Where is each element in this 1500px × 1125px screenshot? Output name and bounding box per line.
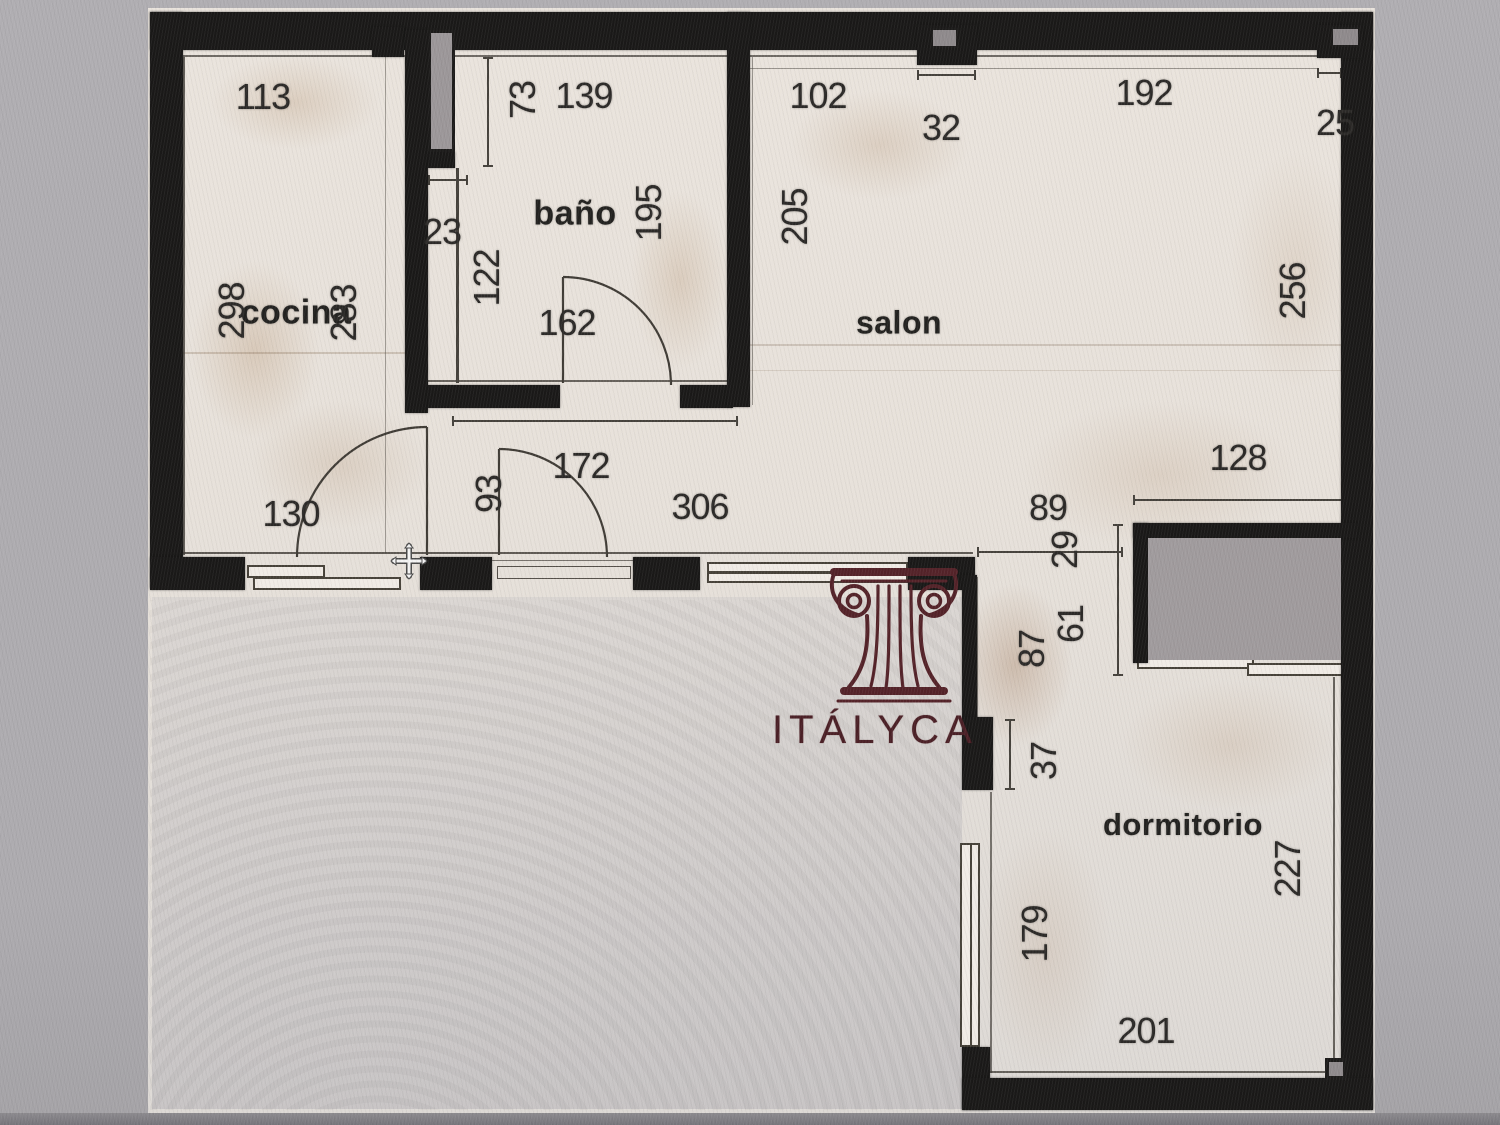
- dimension-label: 195: [628, 184, 670, 241]
- dimension-label: 283: [323, 284, 365, 341]
- dimension-label: 89: [1029, 487, 1067, 529]
- logo-brand-text: ITÁLYCA: [772, 708, 972, 753]
- dimension-label: 128: [1209, 437, 1266, 479]
- dimension-label: 306: [671, 486, 728, 528]
- dimension-label: 192: [1115, 72, 1172, 114]
- dimension-label: 29: [1044, 531, 1086, 569]
- door-swings: [0, 0, 1500, 1125]
- dimension-label: 25: [1316, 102, 1354, 144]
- dimension-label: 73: [502, 81, 544, 119]
- dimension-label: 139: [555, 75, 612, 117]
- dimension-label: 32: [922, 107, 960, 149]
- dimension-label: 37: [1023, 742, 1065, 780]
- dimension-label: 205: [774, 188, 816, 245]
- room-label-bano: baño: [533, 195, 616, 234]
- dimension-label: 298: [211, 282, 253, 339]
- dimension-label: 61: [1050, 605, 1092, 643]
- move-cursor-icon: [388, 540, 430, 582]
- room-label-salon: salon: [856, 305, 942, 342]
- dimension-label: 87: [1011, 630, 1053, 668]
- dimension-label: 113: [236, 76, 290, 118]
- dimension-label: 93: [468, 475, 510, 513]
- dimension-label: 179: [1014, 905, 1056, 962]
- dimension-label: 130: [262, 493, 319, 535]
- floor-plan-photo: cocina baño salon dormitorio 11373139102…: [0, 0, 1500, 1125]
- dimension-label: 162: [538, 302, 595, 344]
- dimension-label: 227: [1267, 840, 1309, 897]
- dimension-label: 23: [423, 211, 461, 253]
- dimension-label: 122: [466, 249, 508, 306]
- dimension-label: 201: [1117, 1010, 1174, 1052]
- door-arc: [297, 427, 427, 557]
- dimension-label: 256: [1272, 262, 1314, 319]
- room-label-dormitorio: dormitorio: [1103, 807, 1263, 843]
- dimension-label: 102: [789, 75, 846, 117]
- logo-column-icon: [770, 560, 970, 710]
- dimension-label: 172: [552, 445, 609, 487]
